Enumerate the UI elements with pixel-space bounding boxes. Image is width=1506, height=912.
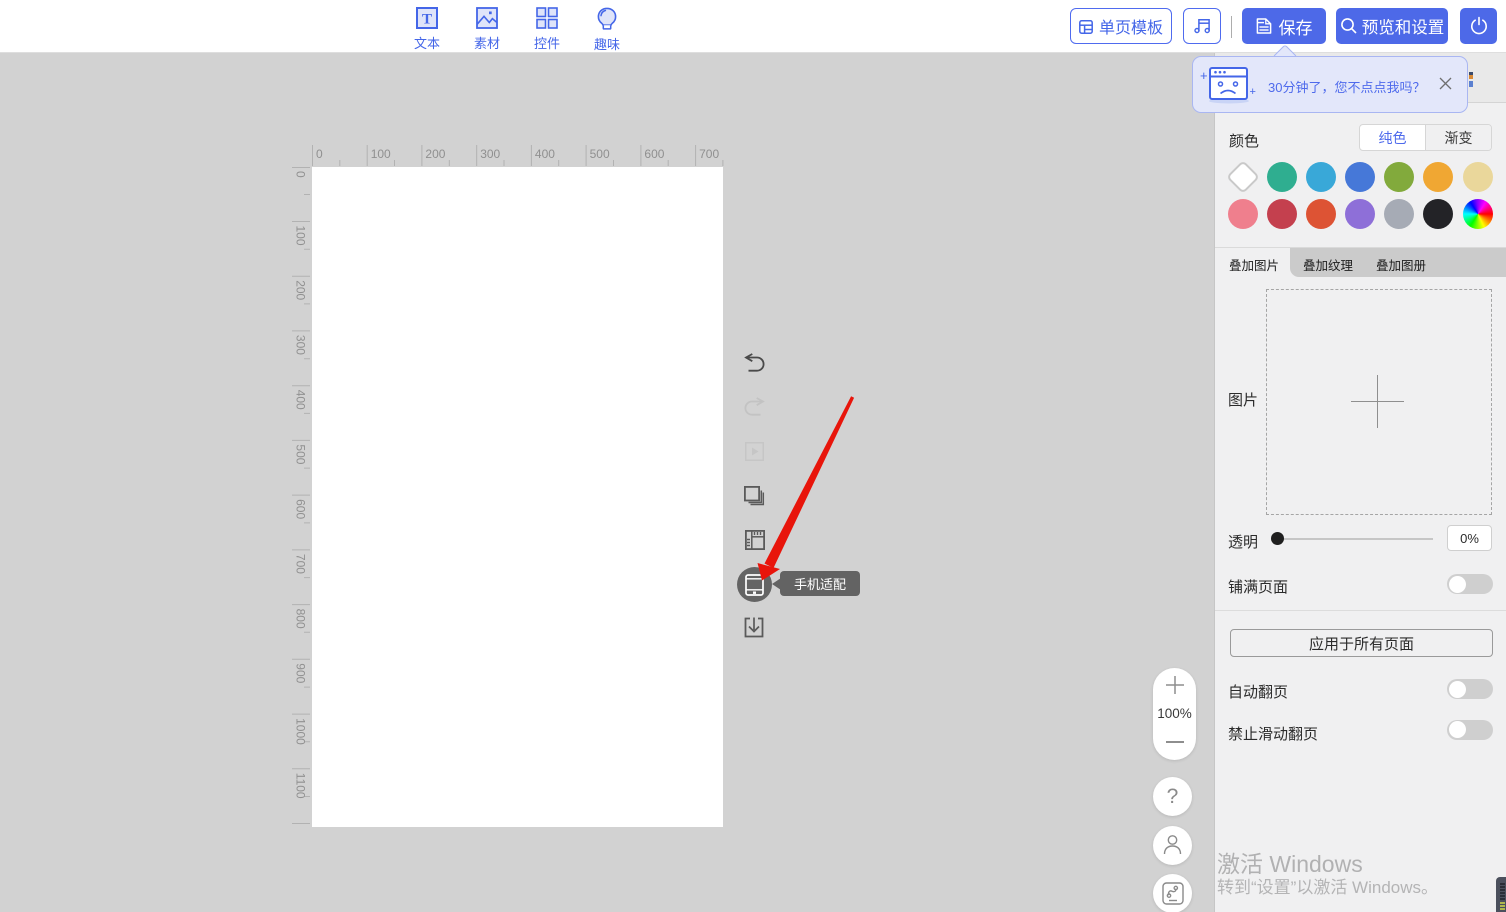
svg-text:+: + — [1200, 68, 1208, 83]
svg-text:400: 400 — [294, 390, 308, 410]
svg-text:500: 500 — [590, 147, 610, 161]
svg-text:0: 0 — [294, 171, 308, 178]
svg-text:100: 100 — [371, 147, 391, 161]
svg-text:700: 700 — [294, 554, 308, 574]
svg-text:1100: 1100 — [294, 773, 308, 799]
svg-text:0: 0 — [316, 147, 323, 161]
svg-text:200: 200 — [425, 147, 445, 161]
svg-text:900: 900 — [294, 663, 308, 683]
svg-text:1000: 1000 — [294, 718, 308, 745]
svg-text:400: 400 — [535, 147, 555, 161]
svg-text:300: 300 — [294, 335, 308, 355]
svg-text:300: 300 — [480, 147, 500, 161]
svg-text:200: 200 — [294, 280, 308, 300]
svg-text:500: 500 — [294, 444, 308, 464]
svg-text:T: T — [422, 12, 432, 28]
svg-text:+: + — [1250, 86, 1256, 98]
svg-text:700: 700 — [699, 147, 719, 161]
svg-text:800: 800 — [294, 609, 308, 629]
svg-text:600: 600 — [294, 499, 308, 519]
svg-text:100: 100 — [294, 226, 308, 246]
svg-text:600: 600 — [644, 147, 664, 161]
